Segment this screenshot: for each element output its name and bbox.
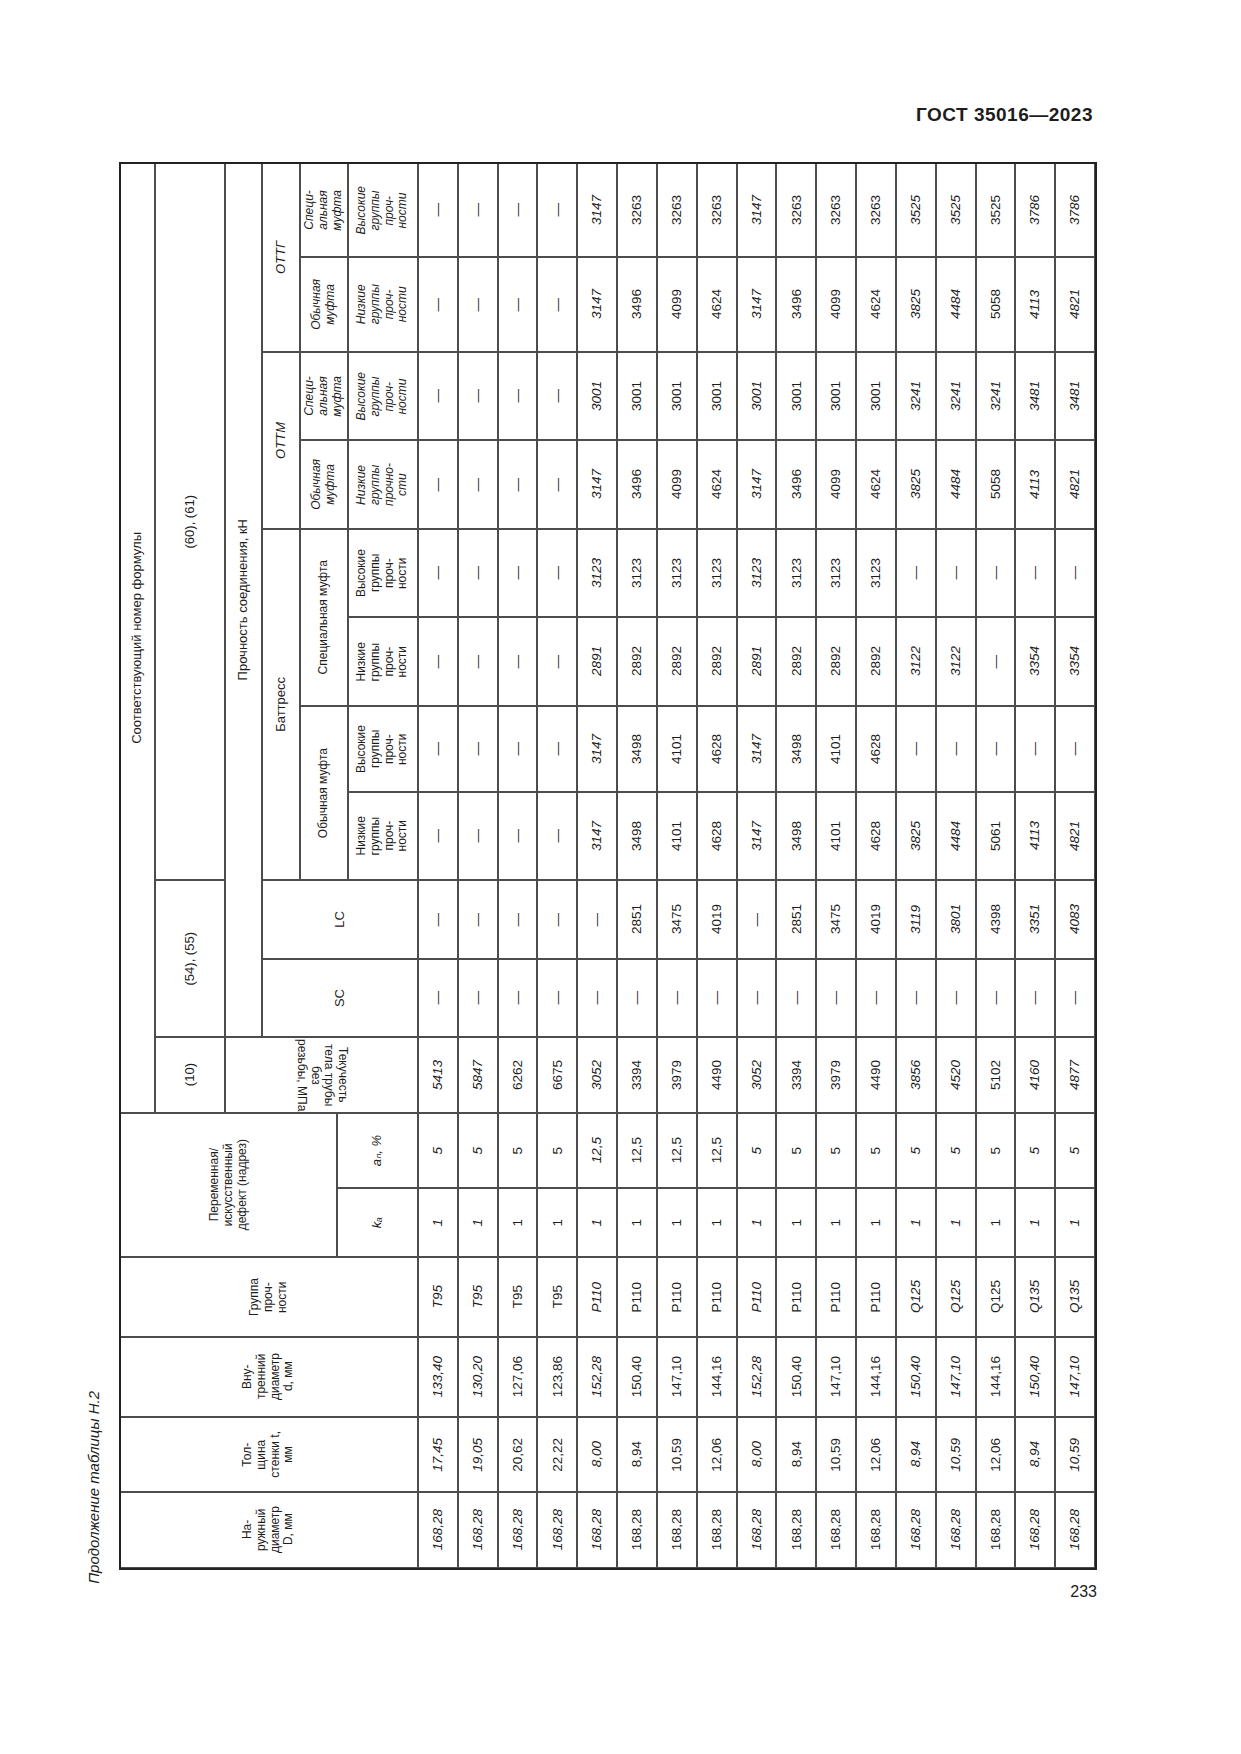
table-caption-text: Продолжение таблицы Н.2 (85, 1391, 102, 1584)
standard-number: ГОСТ 35016—2023 (0, 104, 1093, 126)
document-page: ГОСТ 35016—2023 Продолжение таблицы Н.2 … (0, 0, 1241, 1754)
table-outer-border (119, 162, 1097, 1570)
page-number: 233 (0, 1583, 1097, 1601)
table-caption: Продолжение таблицы Н.2 (64, 1322, 102, 1652)
